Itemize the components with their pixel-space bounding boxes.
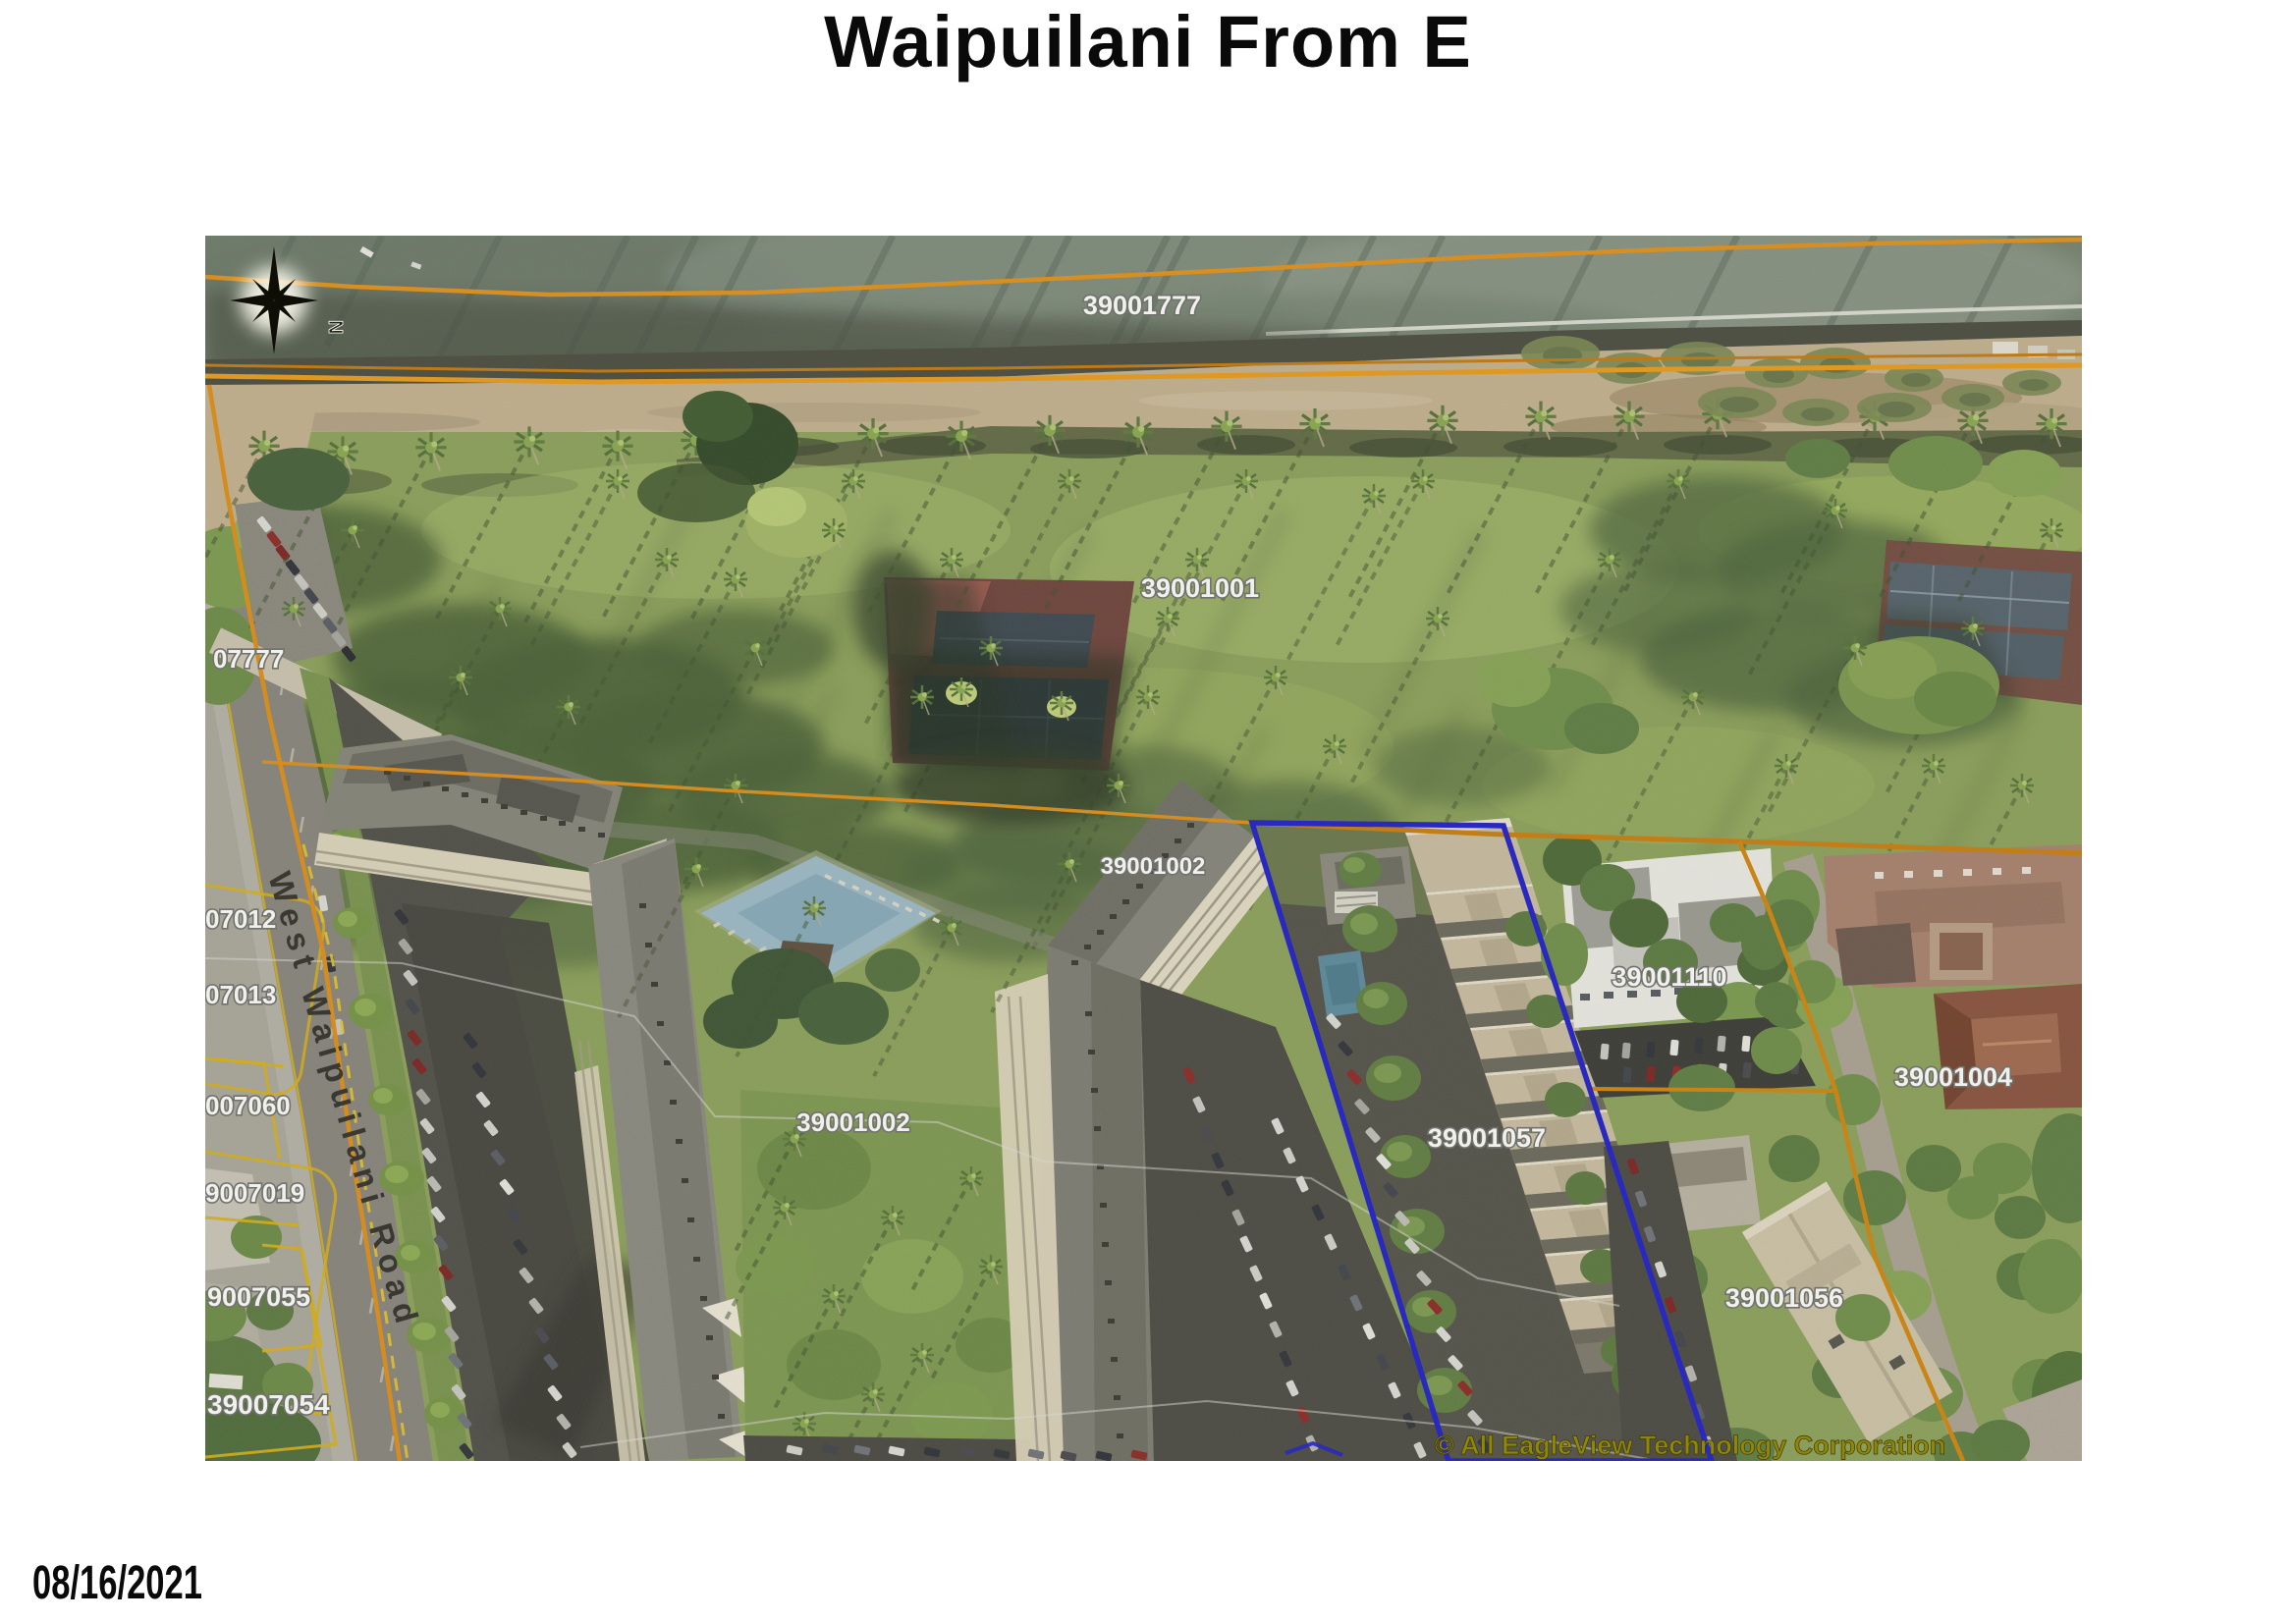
- svg-text:39001110: 39001110: [1612, 962, 1726, 992]
- svg-text:07777: 07777: [213, 644, 284, 674]
- svg-text:07012: 07012: [205, 904, 276, 934]
- svg-text:39001777: 39001777: [1083, 291, 1201, 320]
- svg-text:9007019: 9007019: [205, 1178, 304, 1208]
- svg-text:© All EagleView Technology Cor: © All EagleView Technology Corporation: [1435, 1431, 1945, 1460]
- svg-text:007060: 007060: [205, 1091, 291, 1120]
- svg-text:9007055: 9007055: [207, 1282, 310, 1312]
- svg-text:N: N: [324, 320, 346, 334]
- svg-text:39001001: 39001001: [1141, 573, 1259, 603]
- svg-text:39001002: 39001002: [1101, 853, 1206, 880]
- svg-text:39001057: 39001057: [1428, 1123, 1546, 1153]
- svg-text:07013: 07013: [205, 980, 276, 1009]
- svg-text:39001004: 39001004: [1894, 1062, 2012, 1092]
- svg-text:39007054: 39007054: [207, 1389, 330, 1420]
- svg-text:39001056: 39001056: [1725, 1283, 1843, 1313]
- svg-text:39001002: 39001002: [796, 1108, 910, 1137]
